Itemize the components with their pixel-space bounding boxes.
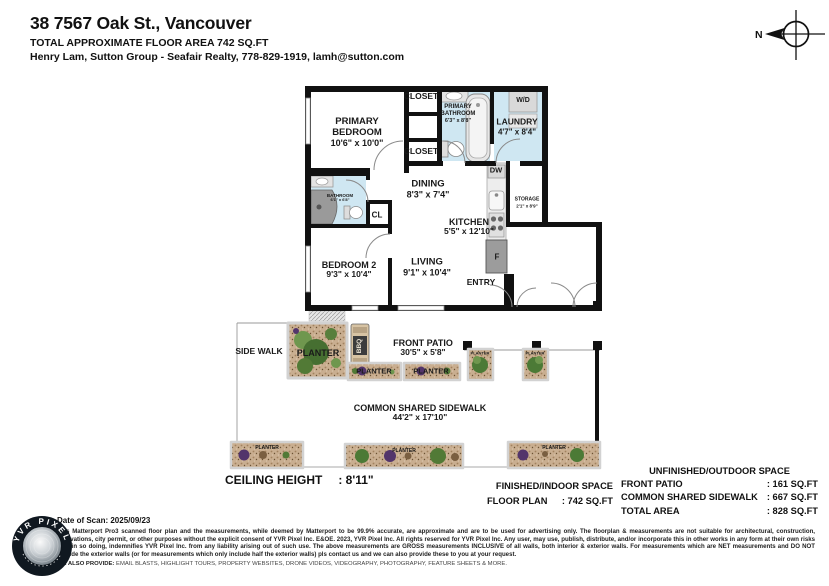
- summary-row-value: : 667 SQ.FT: [767, 492, 818, 502]
- summary-row-value: : 161 SQ.FT: [767, 479, 818, 489]
- side-walk-label: SIDE WALK: [235, 347, 282, 357]
- summary-row: FRONT PATIO : 161 SQ.FT: [621, 479, 818, 489]
- room-label-laundry: LAUNDRY 4'7" x 8'4": [496, 117, 537, 136]
- room-name: PRIMARY BATHROOM: [435, 104, 481, 118]
- yvr-pixel-stamp: YVR PIXEL: [8, 512, 76, 580]
- room-dims: 8'3" x 7'4": [407, 189, 450, 199]
- room-dims: 6'3" x 8'8": [445, 118, 471, 124]
- room-dims: 10'6" x 10'0": [331, 138, 384, 148]
- summary-row-value: : 828 SQ.FT: [767, 506, 818, 516]
- room-dims: 5'5" x 12'10": [444, 227, 494, 237]
- toilet-fixture: [344, 206, 363, 219]
- room-label-bedroom2: BEDROOM 2 9'3" x 10'4": [322, 260, 377, 280]
- summary-row-label: COMMON SHARED SIDEWALK: [621, 492, 758, 502]
- planter-label: PLANTER: [526, 352, 545, 357]
- room-name: LIVING: [411, 256, 443, 267]
- room-dims: 44'2" x 17'10": [393, 413, 448, 423]
- room-name: DINING: [411, 178, 444, 189]
- ceiling-height-value: : 8'11": [338, 473, 373, 487]
- room-name: LAUNDRY: [496, 117, 537, 127]
- room-label-primary-bathroom: PRIMARY BATHROOM 6'3" x 8'8": [435, 104, 481, 124]
- fridge-label: F: [495, 252, 500, 261]
- summary-row-label: FRONT PATIO: [621, 479, 683, 489]
- summary-row: TOTAL AREA : 828 SQ.FT: [621, 506, 818, 516]
- vanity-sink-fixture: [311, 176, 333, 187]
- summary-row: FLOOR PLAN : 742 SQ.FT: [487, 496, 613, 506]
- room-dims: 4'7" x 8'4": [498, 127, 536, 136]
- room-label-dining: DINING 8'3" x 7'4": [407, 178, 450, 199]
- summary-row-label: FLOOR PLAN: [487, 496, 547, 506]
- services-line: WE ALSO PROVIDE: EMAIL BLASTS, HIGHLIGHT…: [57, 561, 815, 567]
- planter-label: PLANTER: [413, 368, 448, 377]
- indoor-space-title: FINISHED/INDOOR SPACE: [487, 481, 613, 491]
- planter-label: PLANTER: [297, 348, 340, 358]
- room-label-living: LIVING 9'1" x 10'4": [403, 256, 451, 277]
- room-label-hall-closet: CL: [372, 210, 383, 219]
- fence-post: [593, 341, 602, 350]
- room-label-closet-bottom: CLOSET: [404, 147, 438, 157]
- room-dims: 6'1" x 6'8": [330, 198, 349, 203]
- floor-plan-page: 38 7567 Oak St., Vancouver TOTAL APPROXI…: [0, 0, 829, 586]
- room-label-kitchen: KITCHEN 5'5" x 12'10": [444, 217, 494, 237]
- bbq-label: BBQ: [356, 339, 364, 353]
- room-dims: 9'1" x 10'4": [403, 267, 451, 277]
- planter-label: PLANTER: [471, 352, 490, 357]
- entry-label: ENTRY: [467, 278, 496, 288]
- room-label-primary-bedroom: PRIMARY BEDROOM 10'6" x 10'0": [325, 116, 389, 148]
- planter-label: PLANTER: [392, 449, 416, 455]
- outdoor-space-summary: UNFINISHED/OUTDOOR SPACE FRONT PATIO : 1…: [621, 466, 818, 516]
- planter-label: PLANTER: [356, 368, 391, 377]
- room-name: CLOSET: [404, 147, 438, 157]
- fence-post: [593, 301, 602, 310]
- indoor-space-summary: FINISHED/INDOOR SPACE FLOOR PLAN : 742 S…: [487, 481, 613, 506]
- front-patio-label: FRONT PATIO 30'5" x 5'8": [393, 338, 453, 358]
- summary-row-value: : 742 SQ.FT: [562, 496, 613, 506]
- room-dims: 30'5" x 5'8": [400, 348, 445, 358]
- site-wall: [595, 350, 599, 444]
- room-label-bathroom: BATHROOM 6'1" x 6'8": [327, 193, 353, 203]
- washer-dryer-label: W/D: [516, 97, 530, 105]
- outdoor-space-title: UNFINISHED/OUTDOOR SPACE: [621, 466, 818, 476]
- room-dims: 9'3" x 10'4": [326, 270, 371, 280]
- summary-row-label: TOTAL AREA: [621, 506, 680, 516]
- dishwasher-label: DW: [490, 167, 503, 176]
- room-label-storage: STORAGE 2'1" x 8'9": [515, 197, 540, 208]
- planter-label: PLANTER: [542, 446, 566, 452]
- room-name: CLOSET: [404, 92, 438, 102]
- common-sidewalk-label: COMMON SHARED SIDEWALK 44'2" x 17'10": [354, 403, 487, 423]
- hatched-garden-strip: [309, 311, 345, 321]
- room-label-closet-top: CLOSET: [404, 92, 438, 102]
- services-list: EMAIL BLASTS, HIGHLIGHT TOURS, PROPERTY …: [114, 561, 507, 567]
- disclaimer-text: This Matterport Pro3 scanned floor plan …: [57, 528, 815, 559]
- room-name: PRIMARY BEDROOM: [325, 116, 389, 138]
- room-dims: 2'1" x 8'9": [516, 203, 537, 208]
- ceiling-height: CEILING HEIGHT : 8'11": [225, 473, 374, 487]
- summary-row: COMMON SHARED SIDEWALK : 667 SQ.FT: [621, 492, 818, 502]
- planter-label: PLANTER: [255, 446, 279, 452]
- ceiling-height-label: CEILING HEIGHT: [225, 473, 322, 487]
